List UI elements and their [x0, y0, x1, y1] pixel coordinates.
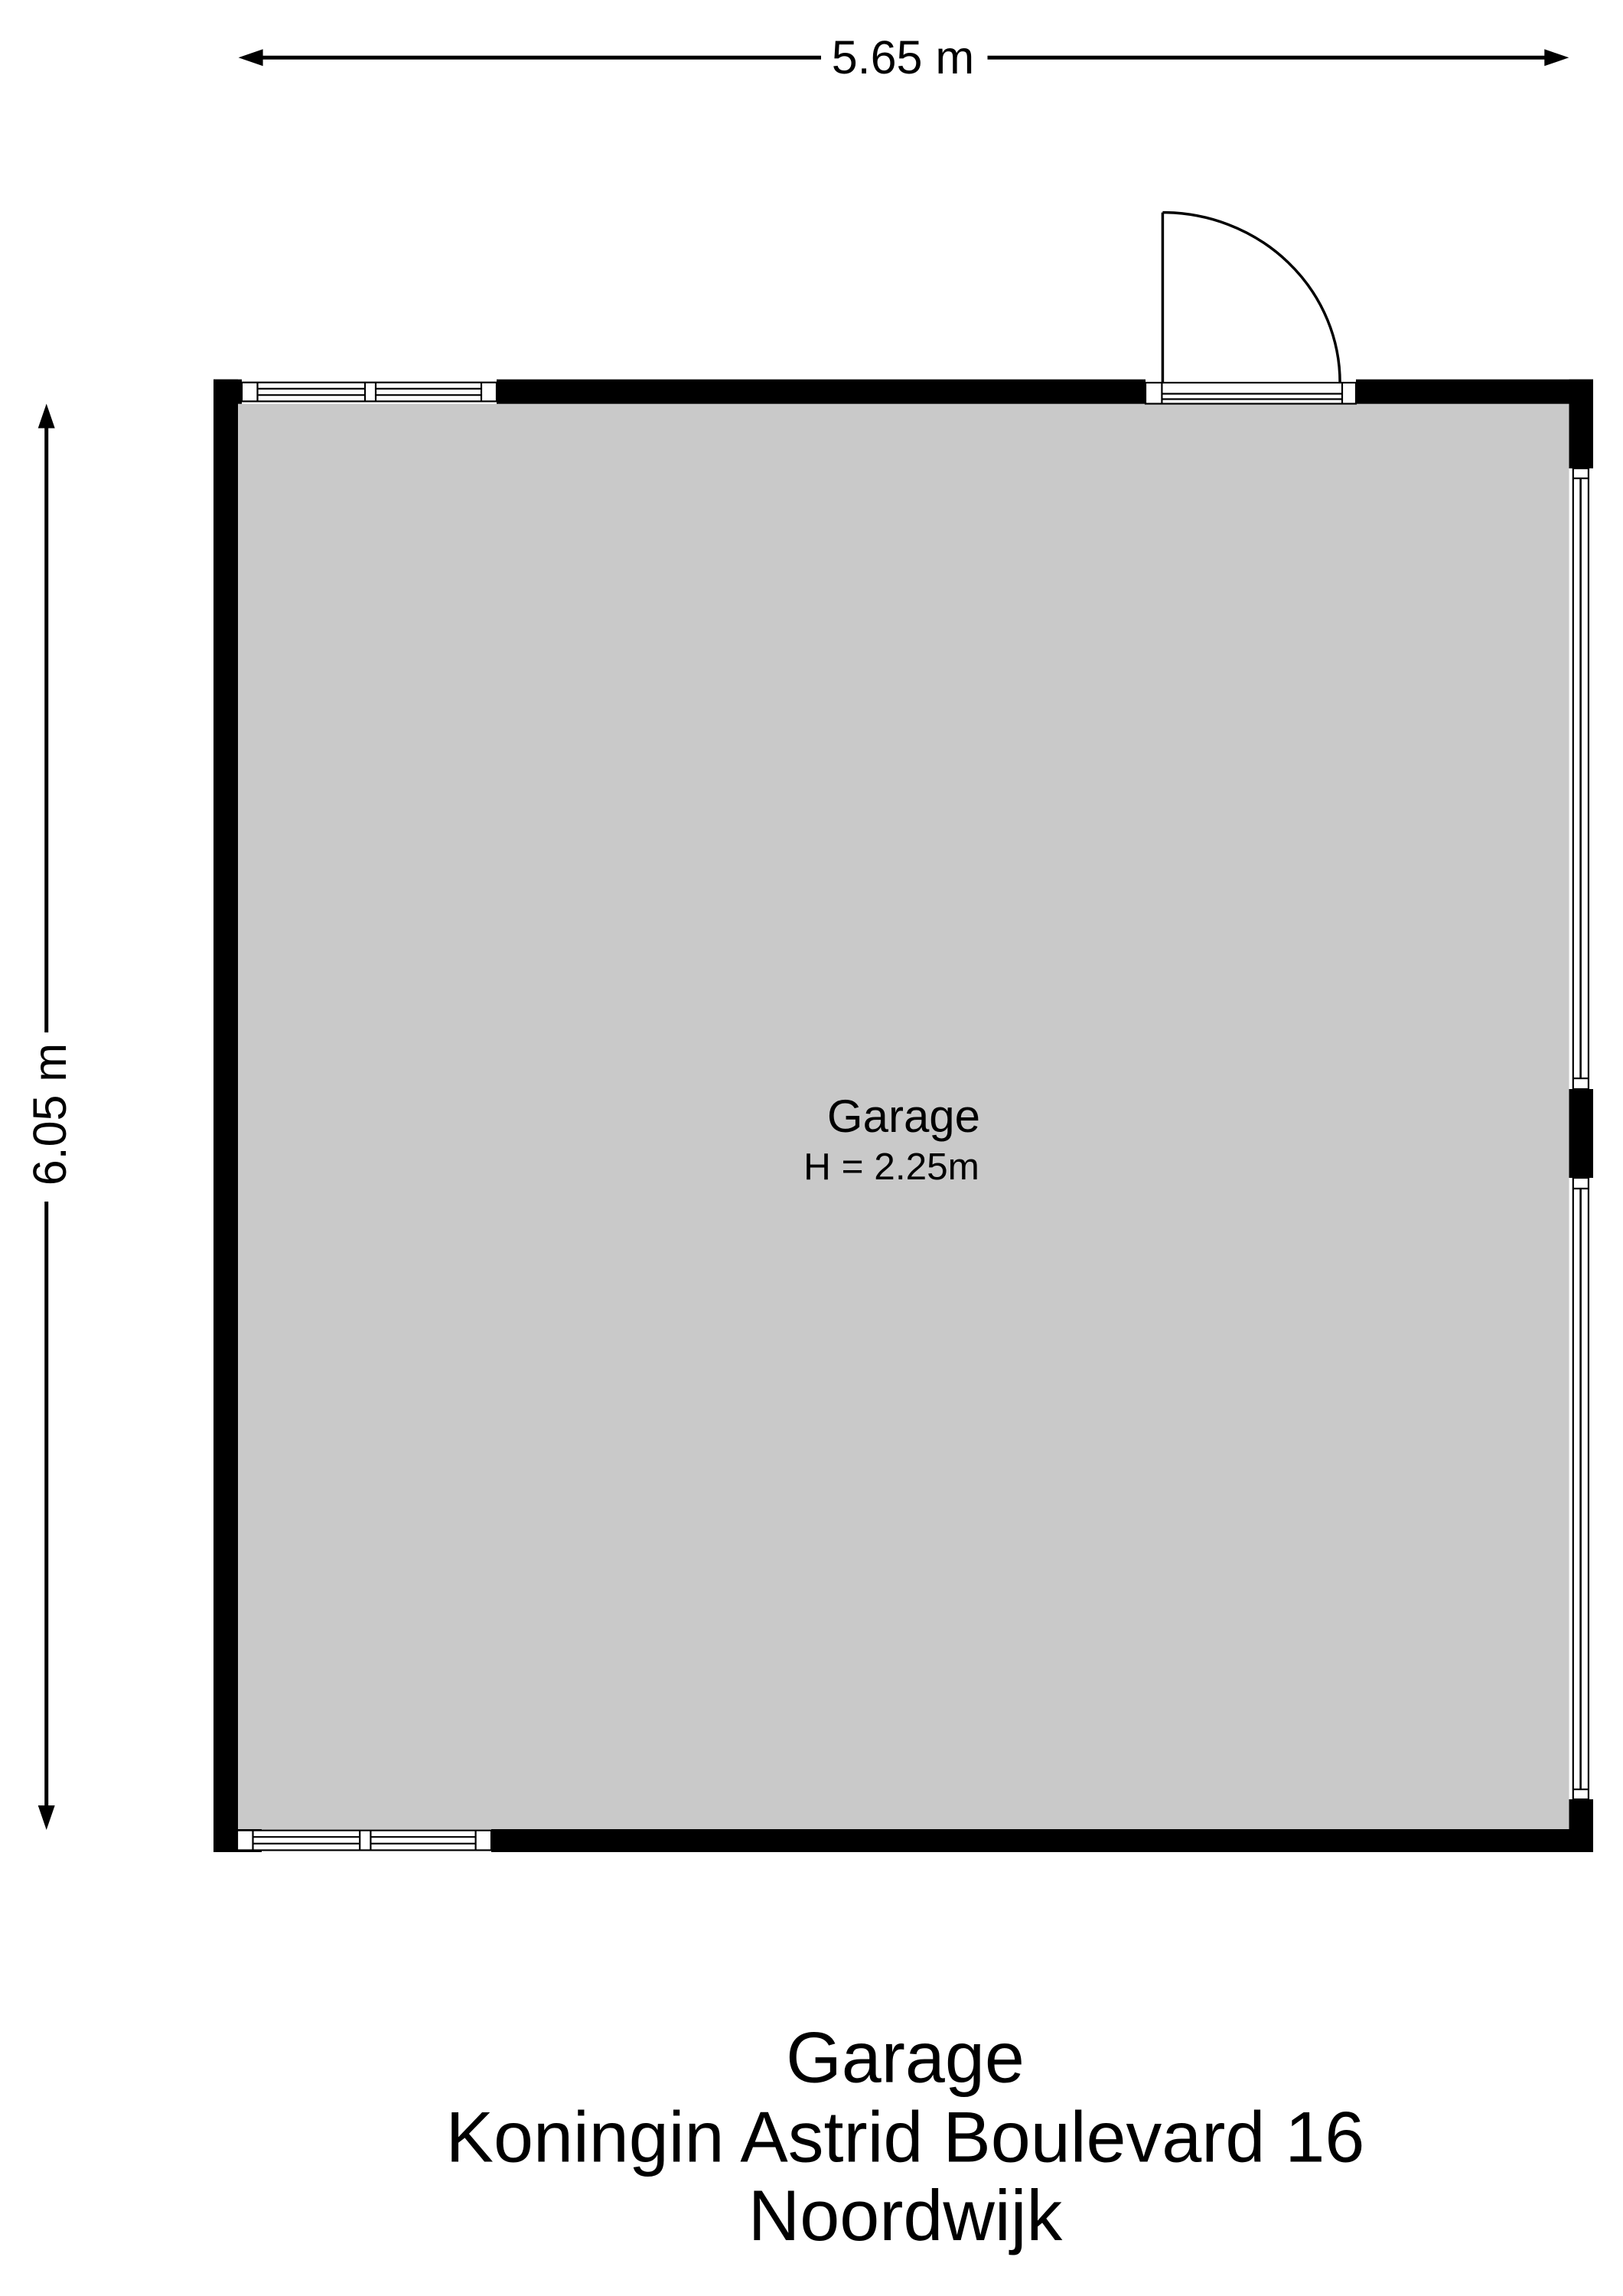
svg-text:H = 2.25m: H = 2.25m	[803, 1146, 979, 1188]
svg-text:Noordwijk: Noordwijk	[748, 2175, 1063, 2255]
svg-text:5.65 m: 5.65 m	[832, 31, 975, 83]
svg-text:Koningin Astrid Boulevard 16: Koningin Astrid Boulevard 16	[446, 2097, 1365, 2177]
svg-text:6.05 m: 6.05 m	[24, 1043, 76, 1186]
svg-text:Garage: Garage	[827, 1091, 980, 1142]
svg-text:Garage: Garage	[786, 2017, 1025, 2098]
